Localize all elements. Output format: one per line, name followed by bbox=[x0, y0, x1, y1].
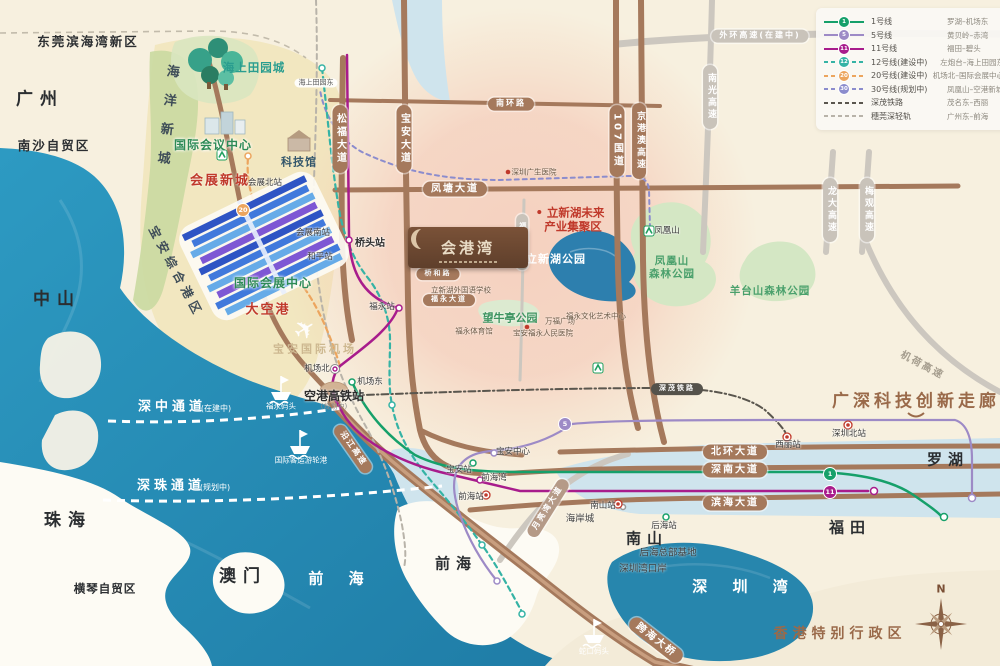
legend-line-name: 20号线(建设中) bbox=[871, 70, 933, 81]
legend-line-route: 黄贝岭–赤湾 bbox=[947, 30, 988, 41]
legend-line-badge: 12 bbox=[838, 56, 850, 68]
project-logo-subtitle-rule bbox=[439, 261, 497, 263]
legend-line-name: 1号线 bbox=[871, 16, 947, 27]
map-stage: ✈ 松福大道宝安大道107国道京港澳高速南环路凤塘大道北环大道深南大道滨海大道桥… bbox=[0, 0, 1000, 666]
legend-line-sample: 5 bbox=[824, 29, 864, 41]
legend-line-badge: 11 bbox=[838, 43, 850, 55]
legend-row: 3030号线(规划中)凤凰山–空港新城 bbox=[824, 83, 1000, 97]
legend-row: 2020号线(建设中)机场北–国际会展中心 bbox=[824, 69, 1000, 83]
legend-line-name: 12号线(建设中) bbox=[871, 57, 940, 68]
hospital-dot bbox=[525, 325, 530, 330]
legend-line-name: 深茂铁路 bbox=[871, 97, 947, 108]
legend-line-route: 福田–碧头 bbox=[947, 43, 981, 54]
legend-line-route: 机场北–国际会展中心 bbox=[933, 70, 1000, 81]
legend-row: 穗莞深轻轨广州东–前海 bbox=[824, 110, 1000, 124]
legend-line-sample: 12 bbox=[824, 56, 864, 68]
legend: 11号线罗湖–机场东55号线黄贝岭–赤湾1111号线福田–碧头1212号线(建设… bbox=[816, 8, 1000, 130]
legend-row: 深茂铁路茂名东–西丽 bbox=[824, 96, 1000, 110]
legend-line-sample: 11 bbox=[824, 43, 864, 55]
legend-line-route: 茂名东–西丽 bbox=[947, 97, 988, 108]
legend-line-badge: 20 bbox=[838, 70, 850, 82]
legend-line-badge: 1 bbox=[838, 16, 850, 28]
legend-line-name: 穗莞深轻轨 bbox=[871, 111, 947, 122]
legend-row: 1111号线福田–碧头 bbox=[824, 42, 1000, 56]
legend-line-sample bbox=[824, 110, 864, 122]
legend-line-badge: 30 bbox=[838, 83, 850, 95]
legend-row: 55号线黄贝岭–赤湾 bbox=[824, 29, 1000, 43]
legend-line-sample: 30 bbox=[824, 83, 864, 95]
legend-line-route: 罗湖–机场东 bbox=[947, 16, 988, 27]
crescent-moon-icon bbox=[408, 227, 432, 251]
legend-row: 1212号线(建设中)左炮台–海上田园东 bbox=[824, 56, 1000, 70]
legend-line-name: 5号线 bbox=[871, 30, 947, 41]
hospital-dot bbox=[506, 170, 511, 175]
project-logo-title: 会港湾 bbox=[441, 237, 495, 258]
legend-line-route: 左炮台–海上田园东 bbox=[940, 57, 1000, 68]
legend-row: 11号线罗湖–机场东 bbox=[824, 15, 1000, 29]
legend-line-sample: 1 bbox=[824, 16, 864, 28]
legend-line-route: 广州东–前海 bbox=[947, 111, 988, 122]
legend-line-route: 凤凰山–空港新城 bbox=[947, 84, 1000, 95]
legend-line-name: 11号线 bbox=[871, 43, 947, 54]
project-logo: 会港湾 bbox=[408, 227, 528, 268]
legend-line-sample: 20 bbox=[824, 70, 864, 82]
legend-line-sample bbox=[824, 97, 864, 109]
legend-line-name: 30号线(规划中) bbox=[871, 84, 947, 95]
legend-line-badge: 5 bbox=[838, 29, 850, 41]
